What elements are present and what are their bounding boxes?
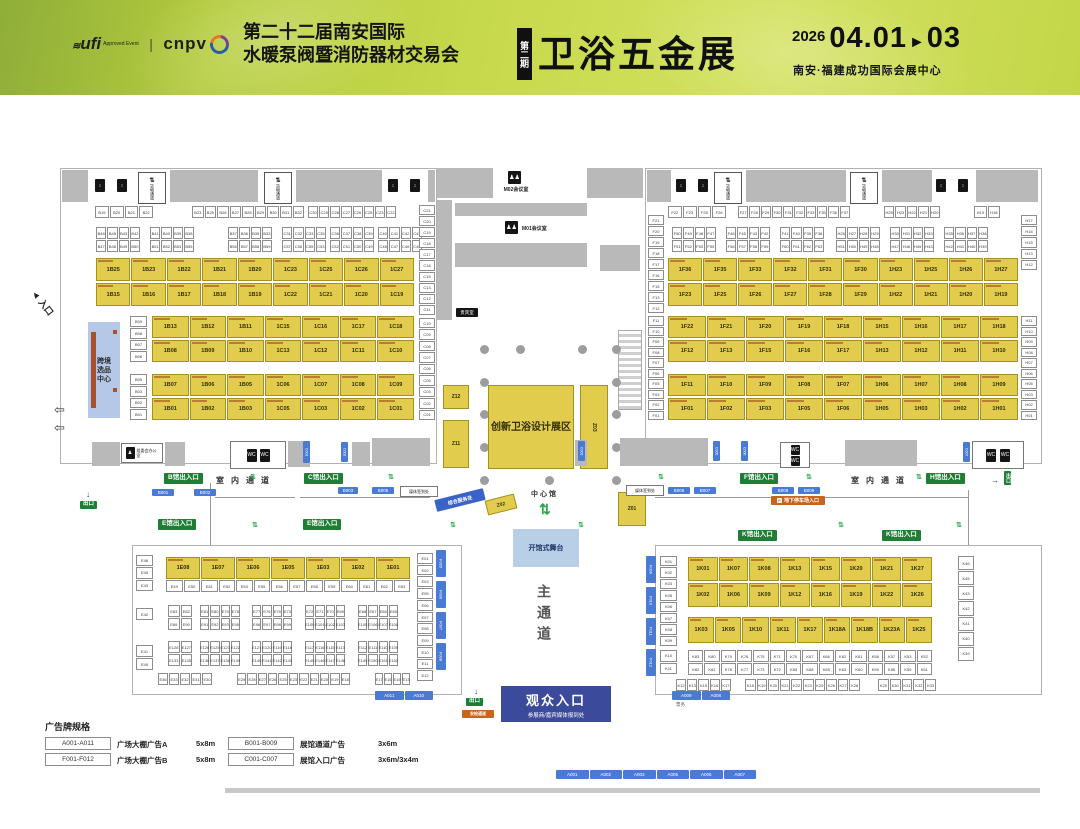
booth-cell: E41	[136, 645, 153, 657]
pillar	[480, 345, 489, 354]
booth-group: E126E125E123E122	[200, 641, 240, 653]
booth-cell: C07	[419, 352, 435, 362]
booth-cell: F52	[683, 240, 693, 252]
booth-cell: E137	[210, 654, 219, 666]
booth-cell: B48	[107, 240, 117, 252]
booth-cell: H15	[1021, 237, 1037, 247]
restroom-icon: WC	[247, 449, 257, 462]
booth-cell: 1B15	[96, 283, 130, 306]
restroom-icon: WC	[260, 449, 270, 462]
booth-cell: K66	[819, 650, 834, 662]
meeting-room-m01: M01会议室	[522, 225, 547, 232]
booth-cell: K31	[902, 679, 913, 691]
booth-column: K01K02K03K05K06K07K08K09	[660, 556, 677, 646]
booth-cell: E112	[358, 641, 367, 653]
booth-cell: B02	[130, 398, 147, 409]
booth-cell: H21	[918, 206, 928, 218]
booth-cell: E61	[359, 580, 376, 592]
booth-cell: E91	[200, 618, 209, 630]
ad-bar: A009	[672, 691, 701, 700]
booth-cell: E56	[271, 580, 288, 592]
booth-cell: H16	[1021, 226, 1037, 236]
booth-cell: 1F07	[824, 374, 862, 396]
entrance-h-label: H馆出入口	[926, 473, 965, 484]
cargo-icon: ⇅	[275, 177, 280, 184]
booth-cell: 1K16	[811, 583, 841, 607]
booth-cell: F10	[648, 327, 664, 337]
booth-cell: K80	[704, 650, 719, 662]
booth-cell: K61	[851, 650, 866, 662]
booth-cell: E135	[181, 654, 193, 666]
booth-cell: K45	[958, 571, 974, 585]
elevator-icon: ↕	[388, 179, 398, 192]
booth-cell: E133	[168, 654, 180, 666]
legend-code-a: A001-A011	[45, 737, 111, 750]
wall-line	[968, 490, 969, 545]
ad-bar: A001	[556, 770, 589, 779]
booth-cell: 1H12	[902, 340, 940, 362]
entrance-k-label: K馆出入口	[882, 530, 921, 541]
booth-cell: 1K21	[872, 557, 902, 581]
booth-cell: F31	[783, 206, 793, 218]
booth-cell: F40	[791, 227, 801, 239]
booth-cell: B31	[280, 206, 292, 218]
booth-cell: H38	[978, 227, 988, 239]
booth-cell: F15	[648, 281, 664, 291]
booth-cell: 1B25	[96, 258, 130, 281]
booth-cell: 1B17	[167, 283, 201, 306]
booth-row: K82K81K78K77K73K72K69K68K65K63K60K59K56K…	[688, 663, 932, 675]
booth-cell: 1H17	[941, 316, 979, 338]
booth-cell: E107	[379, 618, 388, 630]
booth-cell: 1H11	[941, 340, 979, 362]
booth-cell: 1K09	[749, 583, 779, 607]
booth-cell: H10	[1021, 327, 1037, 337]
booth-cell: H31	[901, 227, 911, 239]
legend-desc-a: 广场大棚广告A	[117, 739, 167, 750]
booth-cell: E17	[375, 673, 383, 685]
booth-cell: C31	[282, 227, 292, 239]
booth-cell: F05	[648, 379, 664, 389]
booth-cell: K59	[868, 663, 883, 675]
ad-tag-c006: C006	[741, 441, 748, 461]
pillar	[578, 345, 587, 354]
media-checkin-label: 媒体签到处	[400, 486, 438, 497]
booth-cell: C12	[419, 294, 435, 304]
booth-cell: E60	[341, 580, 358, 592]
booth-cell: 1C05	[265, 398, 302, 420]
pillar	[480, 476, 489, 485]
exit-label: 出口	[466, 698, 483, 706]
booth-cell: 1F29	[843, 283, 877, 306]
booth-cell: B53	[173, 240, 183, 252]
legend-code-f: F001-F012	[45, 753, 111, 766]
booth-cell: B40	[161, 227, 171, 239]
booth-column: H17H16H15H13H12	[1021, 215, 1037, 270]
booth-cell: E10	[417, 647, 433, 658]
booth-cell: 1F08	[785, 374, 823, 396]
booth-cell: K16	[710, 679, 720, 691]
booth-cell: K08	[660, 624, 677, 634]
flow-arrow-icon: ⇅	[658, 474, 664, 481]
booth-cell: F13	[648, 292, 664, 302]
booth-z02: Z02	[485, 494, 518, 516]
booth-cell: K02	[660, 567, 677, 577]
booth-cell: 1K22	[872, 583, 902, 607]
booth-cell: K55	[900, 663, 915, 675]
booth-cell: K65	[819, 663, 834, 675]
booth-cell: B27	[230, 206, 242, 218]
legend-size-c: 3x6m/3x4m	[378, 755, 418, 764]
booth-group: H47H46H45H43	[890, 240, 934, 252]
booth-cell: 1F09	[746, 374, 784, 396]
booth-cell: C25	[364, 206, 374, 218]
booth-cell: C46	[401, 240, 411, 252]
booth-row-yellow: 1K031K051K101K111K171K18A1K18B1K23A1K25	[688, 617, 932, 643]
crossborder-decor	[113, 388, 117, 392]
booth-z12: Z12	[443, 385, 469, 409]
booth-row-yellow: 1B131B121B111C151C161C171C18	[152, 316, 414, 338]
elevator-icon: ↕	[698, 179, 708, 192]
booth-cell: 1B18	[202, 283, 236, 306]
booth-group: H26H27H28H29	[836, 227, 880, 239]
right-arrow-icon: →	[991, 476, 999, 485]
booth-cell: E27	[258, 673, 267, 685]
booth-cell: 1E03	[306, 557, 340, 579]
booth-group: E136E137E138E139	[200, 654, 240, 666]
wall-block	[428, 170, 435, 202]
booth-cell: 1F33	[738, 258, 772, 281]
booth-cell: F19	[648, 237, 664, 247]
booth-cell: B19	[95, 206, 109, 218]
booth-cell: H30	[890, 227, 900, 239]
booth-cell: B45	[107, 227, 117, 239]
elevator-icon: ↕	[958, 179, 968, 192]
booth-cell: E12	[417, 670, 433, 681]
booth-group: F41F40F39F38	[780, 227, 824, 239]
booth-cell: B58	[251, 240, 261, 252]
wall-line	[300, 497, 430, 498]
booth-cell: H22	[907, 206, 917, 218]
booth-cell: E93	[221, 618, 230, 630]
booth-cell: E148	[336, 654, 345, 666]
booth-group: E72E71E70E69	[305, 605, 345, 617]
flow-arrow-icon: ⇅	[450, 522, 456, 529]
booth-cell: E16	[384, 673, 392, 685]
booth-cell: K43	[958, 586, 974, 600]
booth-cell: 1K07	[719, 557, 749, 581]
booth-group: H35H36H37H38	[944, 227, 988, 239]
booth-z01: Z01	[618, 492, 646, 526]
booth-cell: K30	[890, 679, 901, 691]
booth-cell: H06	[1021, 369, 1037, 379]
booth-cell: F39	[803, 227, 813, 239]
booth-cell: 1B21	[202, 258, 236, 281]
booth-cell: B51	[150, 240, 160, 252]
wall-block	[746, 170, 846, 202]
booth-column: K46K45K43K42K41K40K39	[958, 556, 974, 661]
booth-cell: 1F26	[738, 283, 772, 306]
booth-cell: F42	[760, 227, 770, 239]
booth-cell: E141	[262, 654, 271, 666]
restroom-icon: WC	[791, 445, 800, 455]
booth-cell: H41	[955, 240, 965, 252]
booth-cell: 1E06	[236, 557, 270, 579]
booth-cell: F20	[648, 226, 664, 236]
booth-cell: 1H05	[863, 398, 901, 420]
booth-cell: E80	[210, 605, 219, 617]
ad-strip-column: F009F010F011F012	[646, 556, 656, 676]
booth-cell: 1C10	[377, 340, 414, 362]
booth-cell: 1K02	[688, 583, 718, 607]
booth-cell: H02	[1021, 400, 1037, 410]
flow-arrow-icon: ⇅	[838, 522, 844, 529]
crossborder-decor	[91, 332, 96, 408]
booth-cell: B25	[205, 206, 217, 218]
booth-column: B05B03B02B01	[130, 374, 147, 420]
booth-cell: 1B22	[167, 258, 201, 281]
booth-cell: E82	[181, 605, 193, 617]
audience-entrance-banner: 观众入口 参展商/嘉宾媒体报到处	[501, 686, 611, 722]
booth-group: E145E146E147E148	[305, 654, 345, 666]
booth-group-b23: B23B25B26B27B28B29B30B31B32	[192, 206, 304, 218]
booth-cell: F08	[648, 348, 664, 358]
committee-office: ♟组委会办公室	[121, 443, 163, 463]
booth-group: E128E127	[168, 641, 192, 653]
booth-cell: E116	[315, 641, 324, 653]
booth-cell: C56	[293, 240, 303, 252]
ad-bar-b008: B008	[772, 487, 794, 494]
ad-tag-c007: C007	[963, 442, 970, 462]
booth-cell: 1E02	[341, 557, 375, 579]
cargo-channel-badge: ⇅货物通道	[264, 172, 292, 204]
booth-cell: E07	[417, 612, 433, 623]
booth-cell: F49	[683, 227, 693, 239]
booth-cell: 1H25	[914, 258, 948, 281]
booth-cell: E06	[417, 600, 433, 611]
booth-cell: F18	[648, 248, 664, 258]
ad-bar: A005	[657, 770, 690, 779]
ad-bar: A006	[690, 770, 723, 779]
expo-title-line1: 第二十二届南安国际	[243, 21, 459, 44]
booth-cell: H26	[836, 227, 846, 239]
indoor-aisle-label: 室内通道	[851, 475, 911, 486]
ufi-logo: ≋ufi	[72, 34, 101, 53]
booth-cell: E143	[283, 654, 292, 666]
security-channel-label: 安检通道	[462, 710, 494, 718]
booth-cell: 1F32	[773, 258, 807, 281]
booth-cell: H45	[913, 240, 923, 252]
booth-cell: E77	[252, 605, 261, 617]
booth-cell: F62	[803, 240, 813, 252]
pillar	[545, 476, 554, 485]
booth-cell: 1E05	[271, 557, 305, 579]
booth-cell: C53	[316, 240, 326, 252]
meeting-room-m02: M02会议室	[492, 186, 540, 193]
booth-cell: K06	[660, 602, 677, 612]
ad-bar: A010	[405, 691, 434, 700]
booth-cell: K28	[849, 679, 860, 691]
booth-cell: 1B20	[238, 258, 272, 281]
booth-cell: H27	[847, 227, 857, 239]
wall-block	[587, 168, 643, 198]
booth-cell: K23	[803, 679, 814, 691]
booth-column: F21F20F19F18F17F16F15F13F12	[648, 215, 664, 313]
booth-row: K83K80K79K76K75K71K70K67K66K62K61K58K57K…	[688, 650, 932, 662]
ad-strip: F011	[646, 618, 656, 645]
booth-cell: F58	[749, 240, 759, 252]
booth-cell: C35	[316, 227, 326, 239]
booth-cell: 1K11	[770, 617, 796, 643]
booth-cell: 1B12	[190, 316, 227, 338]
wall-block	[170, 170, 258, 202]
booth-cell: E113	[336, 641, 345, 653]
booth-group-b19: B19B20B21B22	[95, 206, 153, 218]
booth-cell: 1K18B	[851, 617, 877, 643]
restroom-block: WCWC	[780, 442, 810, 468]
booth-cell: E02	[417, 565, 433, 576]
ad-tag-c005: C005	[713, 441, 720, 461]
booth-cell: F60	[780, 240, 790, 252]
booth-cell: B46	[96, 227, 106, 239]
wall-block	[647, 170, 671, 202]
booth-cell: 1F13	[707, 340, 745, 362]
wall-block	[372, 438, 430, 466]
booth-cell: H50	[847, 240, 857, 252]
booth-group: E96E97E98E99	[252, 618, 292, 630]
booth-z11: Z11	[443, 420, 469, 468]
restroom-block: WCWC	[230, 441, 286, 469]
booth-cell: F28	[749, 206, 759, 218]
booth-cell: B39	[173, 227, 183, 239]
booth-cell: 1B02	[190, 398, 227, 420]
booth-cell: F33	[806, 206, 816, 218]
booth-cell: E76	[262, 605, 271, 617]
booth-cell: 1F17	[824, 340, 862, 362]
legend-code-b: B001-B009	[228, 737, 294, 750]
ad-bar-b003: B003	[338, 487, 358, 494]
booth-cell: H08	[1021, 348, 1037, 358]
booth-group: E149E150E151E152	[358, 654, 398, 666]
booth-cell: C26	[353, 206, 363, 218]
booth-cell: 1C27	[380, 258, 414, 281]
booth-cell: C36	[330, 227, 340, 239]
booth-cell: 1H23	[879, 258, 913, 281]
booth-cell: 1K19	[841, 583, 871, 607]
booth-cell: 1F30	[843, 258, 877, 281]
booth-cell: K70	[786, 650, 801, 662]
booth-cell: C05	[419, 375, 435, 385]
booth-cell: K39	[958, 647, 974, 661]
booth-cell: H48	[870, 240, 880, 252]
ad-bar-b009: B009	[798, 487, 820, 494]
entrance-e-label: E馆出入口	[303, 519, 341, 530]
booth-cell: 1E01	[376, 557, 410, 579]
booth-row-yellow: 1F111F101F091F081F071H061H071H081H09	[668, 374, 1018, 396]
booth-column: E41E40	[136, 645, 153, 670]
booth-cell: F16	[648, 270, 664, 280]
down-arrow-icon: ↓	[86, 490, 90, 499]
booth-cell: K73	[753, 663, 768, 675]
booth-cell: C06	[419, 364, 435, 374]
booth-cell: B21	[125, 206, 139, 218]
flow-arrow-icon: ⇅	[956, 522, 962, 529]
legend-code-c: C001-C007	[228, 753, 294, 766]
booth-cell: B20	[110, 206, 124, 218]
booth-cell: 1C06	[265, 374, 302, 396]
booth-cell: F25	[698, 206, 712, 218]
media-checkin-label: 媒体签到处	[626, 485, 664, 496]
booth-group: B41B40B39B38	[150, 227, 194, 239]
wall-block	[600, 245, 640, 271]
flow-arrow-icon: ⇅	[916, 474, 922, 481]
booth-cell: 1K27	[902, 557, 932, 581]
booth-cell: E32	[180, 673, 190, 685]
ad-tag-c003: C003	[578, 441, 585, 461]
booth-cell: F27	[738, 206, 748, 218]
booth-cell: E05	[417, 588, 433, 599]
booth-cell: C13	[419, 283, 435, 293]
booth-cell: E42	[136, 608, 153, 620]
booth-cell: K11	[660, 663, 677, 675]
booth-cell: H01	[1021, 411, 1037, 421]
booth-cell: H12	[1021, 260, 1037, 270]
phase-badge: 第二期	[517, 28, 532, 80]
booth-cell: B23	[192, 206, 204, 218]
booth-cell: 1K20	[841, 557, 871, 581]
booth-group-f22: F22F23F25F26	[668, 206, 726, 218]
booth-cell: K57	[884, 650, 899, 662]
booth-cell: E71	[315, 605, 324, 617]
elevator-icon: ↕	[676, 179, 686, 192]
booth-cell: B36	[239, 227, 249, 239]
booth-group: B51B52B53B55	[150, 240, 194, 252]
booth-cell: K53	[900, 650, 915, 662]
booth-cell: K82	[688, 663, 703, 675]
booth-cell: E97	[262, 618, 271, 630]
booth-cell: 1B06	[190, 374, 227, 396]
booth-cell: H19	[974, 206, 987, 218]
booth-cell: H46	[901, 240, 911, 252]
booth-cell: 1C09	[377, 374, 414, 396]
booth-group: C57C56C55C53	[282, 240, 326, 252]
booth-cell: F55	[706, 240, 716, 252]
entrance-k-label: K馆出入口	[738, 530, 777, 541]
cnpv-swirl-icon	[206, 32, 232, 58]
booth-cell: F61	[791, 240, 801, 252]
booth-cell: K42	[958, 601, 974, 615]
parking-entrance-label: P地下停车场入口	[771, 496, 825, 505]
legend-desc-b: 展馆通道广告	[300, 739, 345, 750]
booth-cell: E55	[254, 580, 271, 592]
booth-cell: H05	[1021, 379, 1037, 389]
wall-block	[437, 168, 493, 198]
booth-cell: K46	[958, 556, 974, 570]
booth-cell: E29	[237, 673, 246, 685]
wall-block	[882, 170, 932, 202]
booth-cell: B07	[130, 340, 147, 351]
elevator-icon: ↕	[410, 179, 420, 192]
booth-cell: F53	[695, 240, 705, 252]
booth-cell: C10	[419, 318, 435, 328]
booth-cell: B50	[130, 240, 140, 252]
flow-arrow-icon: ⇅	[388, 474, 394, 481]
booth-group: B37B36B35B33	[228, 227, 272, 239]
booth-cell: E15	[393, 673, 401, 685]
wall-block	[976, 170, 1038, 202]
booth-cell: C16	[419, 260, 435, 270]
pillar	[612, 378, 621, 387]
